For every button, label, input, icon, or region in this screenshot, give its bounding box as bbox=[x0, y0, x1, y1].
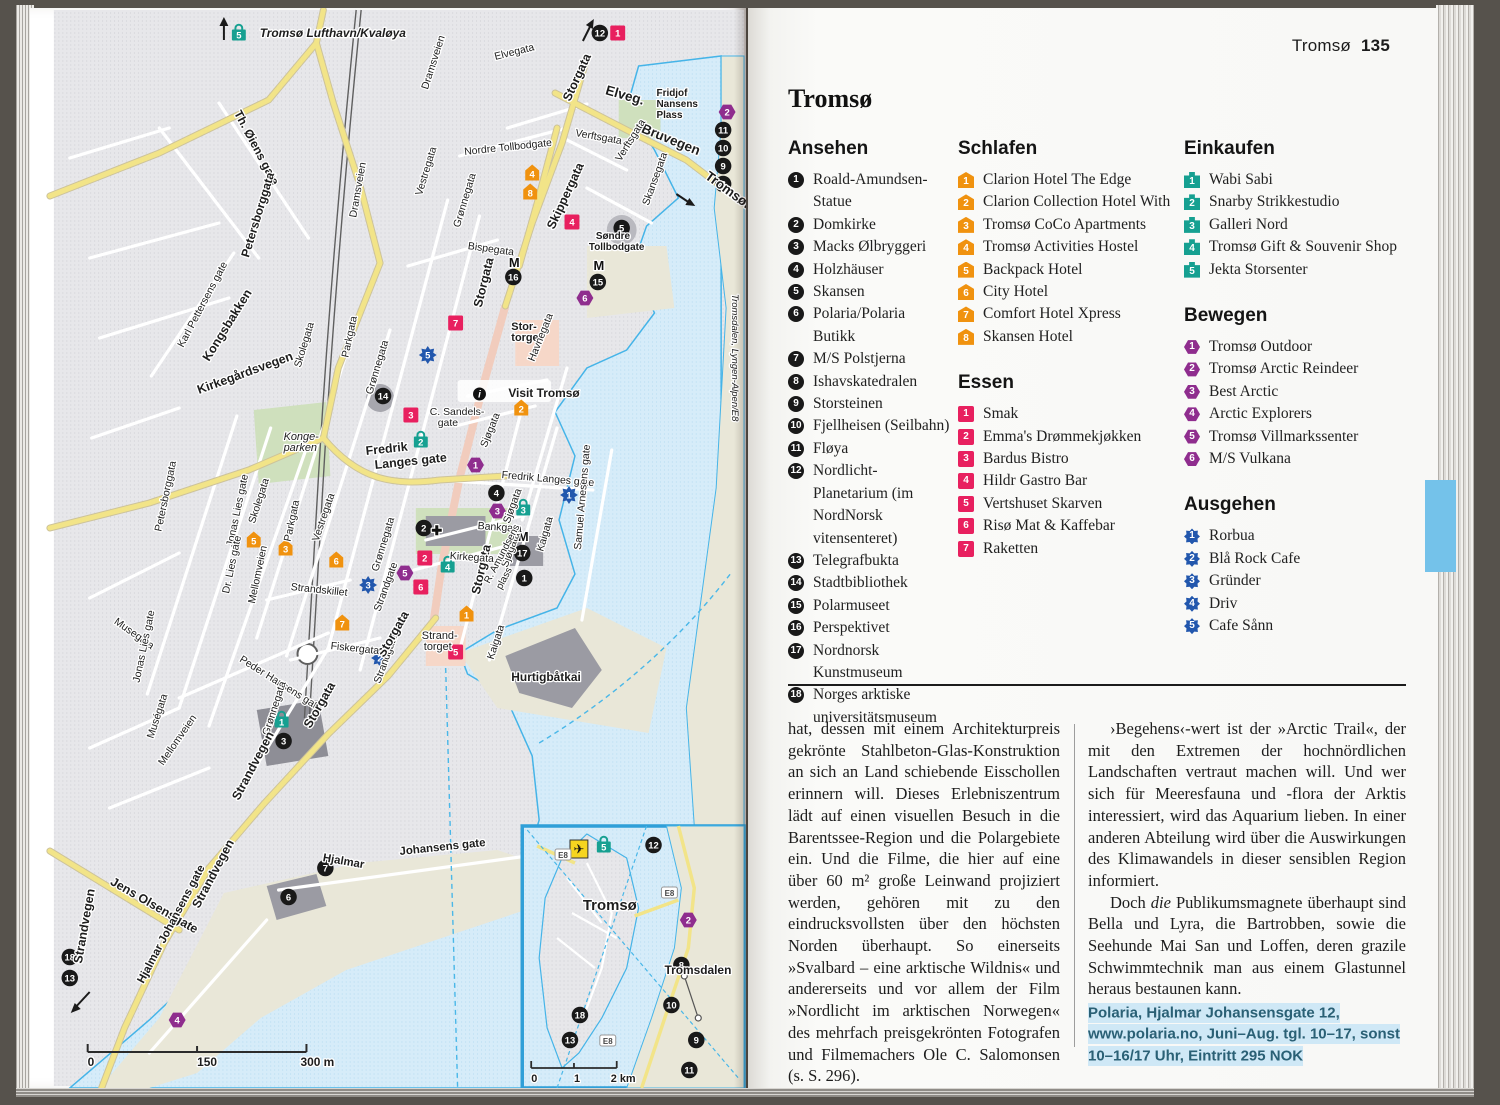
sight-marker-icon: 11 bbox=[788, 441, 804, 457]
legend-item: 4Driv bbox=[1184, 593, 1412, 615]
map-marker-sight-2: 2 bbox=[416, 520, 433, 537]
book-spread: 1234567891011121314151617181234567812345… bbox=[0, 0, 1500, 1105]
svg-text:5: 5 bbox=[425, 350, 430, 361]
legend-item-label: Driv bbox=[1209, 595, 1237, 612]
map-marker-sight-16: 16 bbox=[505, 269, 522, 286]
legend-item: 1Tromsø Outdoor bbox=[1184, 336, 1412, 358]
legend-item-label: Stadtbibliothek bbox=[813, 574, 908, 591]
sight-marker-icon: 3 bbox=[788, 239, 804, 255]
legend-item-label: Risø Mat & Kaffebar bbox=[983, 517, 1115, 534]
sight-marker-icon: 5 bbox=[788, 284, 804, 300]
legend-item-label: Backpack Hotel bbox=[983, 261, 1082, 278]
running-header: Tromsø135 bbox=[1292, 36, 1390, 56]
move-marker-icon: 5 bbox=[1184, 429, 1200, 445]
map-marker-sight-10: 10 bbox=[663, 997, 680, 1014]
svg-text:14: 14 bbox=[378, 391, 389, 402]
map-label: Søndre bbox=[596, 231, 631, 242]
legend-section-schlafen: Schlafen1Clarion Hotel The Edge2Clarion … bbox=[958, 138, 1178, 348]
svg-text:1: 1 bbox=[566, 490, 571, 501]
legend-item-label: Arctic Explorers bbox=[1209, 405, 1312, 422]
legend-item-label: Perspektivet bbox=[813, 619, 890, 636]
food-marker-icon: 2 bbox=[958, 429, 974, 445]
sight-marker-icon: 15 bbox=[788, 598, 804, 614]
legend-column-3: Einkaufen1Wabi Sabi2Snarby Strikkestudio… bbox=[1184, 138, 1412, 638]
map-marker-sight-15: 15 bbox=[590, 274, 607, 291]
svg-text:3: 3 bbox=[521, 506, 526, 517]
running-header-title: Tromsø bbox=[1292, 36, 1351, 55]
legend-item-label: Clarion Collection Hotel With bbox=[983, 193, 1170, 210]
legend-item-label: Telegrafbukta bbox=[813, 552, 899, 569]
svg-text:8: 8 bbox=[528, 189, 533, 200]
legend-item-label: Hildr Gastro Bar bbox=[983, 472, 1087, 489]
info-icon: i bbox=[473, 388, 486, 401]
map-label: Tromsø Lufthavn/Kvaløya bbox=[260, 26, 407, 40]
legend-item: 8Skansen Hotel bbox=[958, 326, 1178, 348]
map-marker-sight-4: 4 bbox=[488, 485, 505, 502]
paragraph: ›Begehens‹-wert ist der »Arctic Trail«, … bbox=[1088, 718, 1406, 892]
map-label: Tromsdalen bbox=[664, 963, 731, 977]
svg-text:5: 5 bbox=[601, 843, 606, 854]
map-marker-sight-12: 12 bbox=[645, 837, 662, 854]
legend-item-label: Tromsø Activities Hostel bbox=[983, 238, 1138, 255]
svg-text:10: 10 bbox=[666, 1000, 677, 1011]
svg-text:2: 2 bbox=[418, 438, 423, 449]
legend-item: 2Tromsø Arctic Reindeer bbox=[1184, 358, 1412, 380]
map-label: 2 km bbox=[611, 1073, 636, 1085]
svg-text:6: 6 bbox=[286, 892, 291, 903]
svg-text:1: 1 bbox=[473, 460, 478, 471]
sight-marker-icon: 2 bbox=[788, 217, 804, 233]
hotel-marker-icon: 4 bbox=[958, 239, 974, 255]
legend-item-label: Best Arctic bbox=[1209, 383, 1278, 400]
map-marker-sight-3: 3 bbox=[275, 733, 292, 750]
legend-item: 3Macks Ølbryggeri bbox=[788, 236, 950, 258]
svg-text:7: 7 bbox=[340, 620, 345, 631]
food-marker-icon: 5 bbox=[958, 496, 974, 512]
svg-text:12: 12 bbox=[595, 28, 606, 39]
legend-item-label: Comfort Hotel Xpress bbox=[983, 305, 1121, 322]
legend-item-label: M/S Vulkana bbox=[1209, 450, 1291, 467]
map-label: Tollbodgate bbox=[589, 242, 645, 253]
legend-item: 3Galleri Nord bbox=[1184, 214, 1412, 236]
legend-item-label: Tromsø Villmarkssenter bbox=[1209, 428, 1358, 445]
legend-item: 7Comfort Hotel Xpress bbox=[958, 303, 1178, 325]
map-marker-out-1: 1 bbox=[560, 486, 578, 504]
map-marker-sight-9: 9 bbox=[688, 1032, 705, 1049]
legend-item-label: Fløya bbox=[813, 440, 848, 457]
move-marker-icon: 4 bbox=[1184, 406, 1200, 422]
svg-text:9: 9 bbox=[720, 161, 725, 172]
svg-text:9: 9 bbox=[694, 1035, 699, 1046]
shop-marker-icon: 3 bbox=[1184, 217, 1200, 233]
legend-item-label: Skansen bbox=[813, 283, 865, 300]
svg-text:5: 5 bbox=[236, 31, 241, 42]
legend-item: 2Clarion Collection Hotel With bbox=[958, 191, 1178, 213]
inset-map bbox=[522, 826, 744, 1088]
legend-section-header: Ausgehen bbox=[1184, 494, 1412, 516]
svg-text:1: 1 bbox=[464, 611, 469, 622]
legend-item-label: Tromsø Outdoor bbox=[1209, 338, 1312, 355]
paragraph: Doch die Publikumsmagnete überhaupt sind… bbox=[1088, 892, 1406, 1001]
legend-item: 1Wabi Sabi bbox=[1184, 169, 1412, 191]
svg-text:5: 5 bbox=[251, 537, 256, 548]
legend-section-header: Bewegen bbox=[1184, 305, 1412, 327]
paragraph-emphasis: die bbox=[1151, 893, 1171, 912]
legend-item-label: Blå Rock Cafe bbox=[1209, 550, 1300, 567]
map-label: Tromsø bbox=[583, 897, 638, 914]
legend-item: 4Tromsø Gift & Souvenir Shop bbox=[1184, 236, 1412, 258]
svg-text:13: 13 bbox=[65, 973, 76, 984]
move-marker-icon: 1 bbox=[1184, 339, 1200, 355]
text-page: Tromsø135 Tromsø Ansehen1Roald-Amundsen-… bbox=[748, 8, 1438, 1088]
legend-item: 8Ishavskatedralen bbox=[788, 371, 950, 393]
body-text: hat, dessen mit einem Architekturpreis g… bbox=[788, 718, 1408, 1087]
sight-marker-icon: 13 bbox=[788, 553, 804, 569]
legend-item: 5Backpack Hotel bbox=[958, 259, 1178, 281]
map-label: C. Sandels- bbox=[430, 407, 485, 418]
map-marker-sight-14: 14 bbox=[375, 388, 392, 405]
legend-item-label: Holzhäuser bbox=[813, 261, 884, 278]
map-label: torget bbox=[424, 641, 452, 653]
map-marker-out-3: 3 bbox=[359, 576, 377, 594]
legend-item-label: Polarmuseet bbox=[813, 597, 890, 614]
legend-section-essen: Essen1Smak2Emma's Drømmekjøkken3Bardus B… bbox=[958, 372, 1178, 560]
info-box-text: Polaria, Hjalmar Johansensgate 12, www.p… bbox=[1088, 1003, 1400, 1066]
out-marker-icon: 2 bbox=[1184, 551, 1200, 567]
map-marker-food-2: 2 bbox=[417, 551, 432, 566]
legend-item-label: Nordnorsk Kunstmuseum bbox=[813, 642, 903, 681]
road-shield-icon: E8 bbox=[555, 849, 571, 860]
food-marker-icon: 3 bbox=[958, 451, 974, 467]
sight-marker-icon: 6 bbox=[788, 306, 804, 322]
svg-text:2: 2 bbox=[421, 523, 426, 534]
map-marker-sight-1: 1 bbox=[516, 570, 533, 587]
legend-item-label: Snarby Strikkestudio bbox=[1209, 193, 1339, 210]
svg-text:16: 16 bbox=[508, 272, 519, 283]
legend-section-header: Einkaufen bbox=[1184, 138, 1412, 160]
food-marker-icon: 7 bbox=[958, 541, 974, 557]
legend-item-label: Galleri Nord bbox=[1209, 216, 1288, 233]
food-marker-icon: 1 bbox=[958, 406, 974, 422]
sight-marker-icon: 16 bbox=[788, 620, 804, 636]
svg-text:18: 18 bbox=[575, 1010, 586, 1021]
map-label: Visit Tromsø bbox=[508, 386, 580, 400]
sight-marker-icon: 9 bbox=[788, 396, 804, 412]
out-marker-icon: 5 bbox=[1184, 618, 1200, 634]
legend-item-label: Macks Ølbryggeri bbox=[813, 238, 926, 255]
hotel-marker-icon: 2 bbox=[958, 194, 974, 210]
legend-item: 5Cafe Sånn bbox=[1184, 615, 1412, 637]
svg-text:4: 4 bbox=[569, 217, 575, 228]
map-label: 150 bbox=[197, 1055, 217, 1069]
svg-text:3: 3 bbox=[408, 410, 413, 421]
map-marker-out-5: 5 bbox=[419, 346, 437, 364]
hotel-marker-icon: 6 bbox=[958, 284, 974, 300]
legend-section-bewegen: Bewegen1Tromsø Outdoor2Tromsø Arctic Rei… bbox=[1184, 305, 1412, 470]
svg-text:i: i bbox=[478, 389, 481, 400]
svg-text:4: 4 bbox=[494, 488, 500, 499]
legend-item-label: Tromsø Gift & Souvenir Shop bbox=[1209, 238, 1397, 255]
legend-item-label: Storsteinen bbox=[813, 395, 883, 412]
svg-text:7: 7 bbox=[453, 318, 458, 329]
map-label: parken bbox=[283, 442, 317, 454]
svg-text:M: M bbox=[593, 258, 604, 273]
church-icon: ✚ bbox=[431, 523, 442, 538]
page-title: Tromsø bbox=[788, 84, 872, 114]
sight-marker-icon: 12 bbox=[788, 463, 804, 479]
map-label: 300 m bbox=[300, 1055, 334, 1069]
svg-text:4: 4 bbox=[530, 170, 536, 181]
legend-item-label: Vertshuset Skarven bbox=[983, 495, 1102, 512]
svg-text:2: 2 bbox=[422, 553, 427, 564]
svg-text:17: 17 bbox=[517, 548, 528, 559]
sight-marker-icon: 8 bbox=[788, 374, 804, 390]
out-marker-icon: 1 bbox=[1184, 528, 1200, 544]
move-marker-icon: 2 bbox=[1184, 361, 1200, 377]
legend-item: 4Tromsø Activities Hostel bbox=[958, 236, 1178, 258]
map-marker-food-7: 7 bbox=[448, 316, 463, 331]
legend-item: 5Tromsø Villmarkssenter bbox=[1184, 426, 1412, 448]
legend-item-label: Raketten bbox=[983, 540, 1038, 557]
legend-item: 4Arctic Explorers bbox=[1184, 403, 1412, 425]
legend-item-label: Clarion Hotel The Edge bbox=[983, 171, 1131, 188]
map-marker-sight-10: 10 bbox=[715, 140, 732, 157]
move-marker-icon: 6 bbox=[1184, 451, 1200, 467]
legend-item: 11Fløya bbox=[788, 438, 950, 460]
sight-marker-icon: 14 bbox=[788, 575, 804, 591]
legend-item-label: Emma's Drømmekjøkken bbox=[983, 428, 1141, 445]
legend-item: 7Raketten bbox=[958, 538, 1178, 560]
svg-text:2: 2 bbox=[724, 107, 729, 118]
legend-item: 2Blå Rock Cafe bbox=[1184, 548, 1412, 570]
legend-item: 17Nordnorsk Kunstmuseum bbox=[788, 640, 950, 685]
map-label: Tromsdalen, Lyngen-Alpen/E8 bbox=[729, 294, 740, 422]
legend-item-label: Domkirke bbox=[813, 216, 876, 233]
legend-item-label: Roald-Amundsen-Statue bbox=[813, 171, 928, 210]
legend-item: 6Polaria/Polaria Butikk bbox=[788, 303, 950, 348]
map-marker-sight-11: 11 bbox=[715, 122, 732, 139]
hotel-marker-icon: 8 bbox=[958, 329, 974, 345]
svg-text:✈: ✈ bbox=[574, 841, 585, 856]
legend-item-label: Wabi Sabi bbox=[1209, 171, 1273, 188]
legend-item-label: Fjellheisen (Seilbahn) bbox=[813, 417, 949, 434]
svg-text:3: 3 bbox=[283, 545, 288, 556]
legend-item: 4Holzhäuser bbox=[788, 259, 950, 281]
legend-item: 1Smak bbox=[958, 403, 1178, 425]
column-divider bbox=[1074, 724, 1075, 1047]
hotel-marker-icon: 3 bbox=[958, 217, 974, 233]
svg-text:✚: ✚ bbox=[431, 523, 442, 538]
sight-marker-icon: 17 bbox=[788, 643, 804, 659]
map-label: Hurtigbåtkai bbox=[511, 670, 581, 684]
legend-item: 1Clarion Hotel The Edge bbox=[958, 169, 1178, 191]
shop-marker-icon: 2 bbox=[1184, 194, 1200, 210]
legend-item: 6M/S Vulkana bbox=[1184, 448, 1412, 470]
svg-text:3: 3 bbox=[281, 736, 286, 747]
map-label: gate bbox=[438, 418, 458, 429]
body-column-left: hat, dessen mit einem Architekturpreis g… bbox=[788, 718, 1060, 1087]
food-marker-icon: 6 bbox=[958, 518, 974, 534]
legend-section-ansehen: Ansehen1Roald-Amundsen-Statue2Domkirke3M… bbox=[788, 138, 950, 729]
legend-item-label: Gründer bbox=[1209, 572, 1261, 589]
legend-item-label: Polaria/Polaria Butikk bbox=[813, 305, 905, 344]
section-divider bbox=[788, 684, 1406, 686]
legend-item: 7M/S Polstjerna bbox=[788, 348, 950, 370]
page-stack-bottom bbox=[16, 1088, 1474, 1097]
svg-text:15: 15 bbox=[593, 277, 604, 288]
body-column-right: ›Begehens‹-wert ist der »Arctic Trail«, … bbox=[1088, 718, 1406, 1087]
legend-item: 3Bardus Bistro bbox=[958, 448, 1178, 470]
svg-text:11: 11 bbox=[718, 125, 728, 136]
svg-text:E8: E8 bbox=[603, 1037, 613, 1046]
svg-text:4: 4 bbox=[445, 563, 451, 574]
svg-text:10: 10 bbox=[718, 143, 729, 154]
map-marker-sight-11: 11 bbox=[681, 1062, 698, 1079]
info-box: Polaria, Hjalmar Johansensgate 12, www.p… bbox=[1088, 1002, 1406, 1067]
sight-marker-icon: 4 bbox=[788, 262, 804, 278]
legend-item: 5Skansen bbox=[788, 281, 950, 303]
map-marker-food-1: 1 bbox=[610, 26, 625, 41]
legend-item: 12Nordlicht-Planetarium (im NordNorsk vi… bbox=[788, 460, 950, 550]
legend-item-label: City Hotel bbox=[983, 283, 1048, 300]
legend-item: 5Jekta Storsenter bbox=[1184, 259, 1412, 281]
svg-text:E8: E8 bbox=[665, 889, 675, 898]
food-marker-icon: 4 bbox=[958, 473, 974, 489]
legend-item: 2Domkirke bbox=[788, 214, 950, 236]
svg-text:3: 3 bbox=[495, 506, 500, 517]
svg-text:7: 7 bbox=[323, 863, 328, 874]
map-page: 1234567891011121314151617181234567812345… bbox=[30, 8, 746, 1088]
legend-item-label: Bardus Bistro bbox=[983, 450, 1069, 467]
out-marker-icon: 4 bbox=[1184, 596, 1200, 612]
legend-item-label: Tromsø CoCo Apartments bbox=[983, 216, 1146, 233]
chapter-tab bbox=[1425, 480, 1456, 572]
legend-item: 1Roald-Amundsen-Statue bbox=[788, 169, 950, 214]
legend-column-2: Schlafen1Clarion Hotel The Edge2Clarion … bbox=[958, 138, 1178, 560]
legend-item: 6City Hotel bbox=[958, 281, 1178, 303]
svg-text:4: 4 bbox=[175, 1015, 181, 1026]
legend-section-header: Ansehen bbox=[788, 138, 950, 160]
map-label: 0 bbox=[531, 1073, 537, 1085]
svg-text:1: 1 bbox=[615, 28, 620, 39]
sight-marker-icon: 1 bbox=[788, 172, 804, 188]
svg-text:13: 13 bbox=[565, 1035, 576, 1046]
shop-marker-icon: 1 bbox=[1184, 172, 1200, 188]
legend-item: 13Telegrafbukta bbox=[788, 550, 950, 572]
hotel-marker-icon: 7 bbox=[958, 306, 974, 322]
sight-marker-icon: 7 bbox=[788, 351, 804, 367]
svg-text:1: 1 bbox=[522, 573, 527, 584]
map-marker-food-4: 4 bbox=[565, 215, 580, 230]
tromso-city-map: 1234567891011121314151617181234567812345… bbox=[30, 8, 746, 1088]
svg-text:1: 1 bbox=[279, 718, 284, 729]
legend-item-label: Nordlicht-Planetarium (im NordNorsk vite… bbox=[813, 462, 913, 546]
shop-marker-icon: 5 bbox=[1184, 262, 1200, 278]
svg-text:6: 6 bbox=[334, 557, 339, 568]
map-marker-sight-13: 13 bbox=[62, 970, 79, 987]
map-marker-sight-12: 12 bbox=[592, 25, 609, 42]
svg-text:2: 2 bbox=[686, 915, 691, 926]
svg-text:11: 11 bbox=[684, 1065, 694, 1076]
legend-item: 15Polarmuseet bbox=[788, 595, 950, 617]
map-marker-food-3: 3 bbox=[403, 408, 418, 423]
svg-text:2: 2 bbox=[519, 405, 524, 416]
legend-item-label: Cafe Sånn bbox=[1209, 617, 1273, 634]
legend-item: 2Snarby Strikkestudio bbox=[1184, 191, 1412, 213]
svg-text:E8: E8 bbox=[558, 851, 568, 860]
map-marker-food-6: 6 bbox=[413, 580, 428, 595]
map-marker-sight-18: 18 bbox=[572, 1007, 589, 1024]
shop-marker-icon: 4 bbox=[1184, 239, 1200, 255]
svg-text:12: 12 bbox=[648, 840, 659, 851]
hotel-marker-icon: 1 bbox=[958, 172, 974, 188]
legend-section-einkaufen: Einkaufen1Wabi Sabi2Snarby Strikkestudio… bbox=[1184, 138, 1412, 281]
hotel-marker-icon: 5 bbox=[958, 262, 974, 278]
legend-item-label: Jekta Storsenter bbox=[1209, 261, 1308, 278]
legend-item-label: Skansen Hotel bbox=[983, 328, 1073, 345]
legend-item: 9Storsteinen bbox=[788, 393, 950, 415]
svg-text:3: 3 bbox=[365, 580, 370, 591]
museum-icon: M bbox=[593, 258, 604, 273]
legend-item: 1Rorbua bbox=[1184, 525, 1412, 547]
legend-item: 2Emma's Drømmekjøkken bbox=[958, 426, 1178, 448]
sight-marker-icon: 18 bbox=[788, 687, 804, 703]
map-label: 0 bbox=[88, 1055, 95, 1069]
out-marker-icon: 3 bbox=[1184, 573, 1200, 589]
legend-section-header: Essen bbox=[958, 372, 1178, 394]
svg-text:6: 6 bbox=[582, 293, 587, 304]
airport-icon: ✈ bbox=[570, 840, 588, 858]
legend-column-1: Ansehen1Roald-Amundsen-Statue2Domkirke3M… bbox=[788, 138, 950, 729]
paragraph: hat, dessen mit einem Architekturpreis g… bbox=[788, 718, 1060, 1087]
svg-text:5: 5 bbox=[453, 647, 458, 658]
map-label: Fridjof bbox=[657, 88, 689, 99]
svg-text:5: 5 bbox=[402, 568, 407, 579]
sight-marker-icon: 10 bbox=[788, 418, 804, 434]
legend-item: 14Stadtbibliothek bbox=[788, 572, 950, 594]
legend-item-label: M/S Polstjerna bbox=[813, 350, 906, 367]
legend-item: 5Vertshuset Skarven bbox=[958, 493, 1178, 515]
legend-item-label: Rorbua bbox=[1209, 527, 1255, 544]
road-shield-icon: E8 bbox=[600, 1035, 616, 1046]
legend-item-label: Tromsø Arctic Reindeer bbox=[1209, 360, 1358, 377]
legend-item: 16Perspektivet bbox=[788, 617, 950, 639]
map-label: 1 bbox=[574, 1073, 580, 1085]
road-shield-icon: E8 bbox=[661, 887, 677, 898]
legend-item: 3Gründer bbox=[1184, 570, 1412, 592]
move-marker-icon: 3 bbox=[1184, 384, 1200, 400]
map-marker-sight-6: 6 bbox=[280, 889, 297, 906]
map-marker-sight-13: 13 bbox=[562, 1032, 579, 1049]
legend-item: 4Hildr Gastro Bar bbox=[958, 470, 1178, 492]
legend-item: 6Risø Mat & Kaffebar bbox=[958, 515, 1178, 537]
legend-section-ausgehen: Ausgehen1Rorbua2Blå Rock Cafe3Gründer4Dr… bbox=[1184, 494, 1412, 637]
legend-item-label: Smak bbox=[983, 405, 1018, 422]
page-number: 135 bbox=[1361, 36, 1390, 55]
legend-item: 10Fjellheisen (Seilbahn) bbox=[788, 415, 950, 437]
paragraph-text: Doch bbox=[1110, 893, 1151, 912]
svg-text:6: 6 bbox=[418, 582, 423, 593]
map-label: Plass bbox=[657, 110, 683, 121]
legend-item: 3Best Arctic bbox=[1184, 381, 1412, 403]
legend-item: 3Tromsø CoCo Apartments bbox=[958, 214, 1178, 236]
map-label: Nansens bbox=[657, 99, 699, 110]
legend-item-label: Ishavskatedralen bbox=[813, 373, 917, 390]
legend-section-header: Schlafen bbox=[958, 138, 1178, 160]
